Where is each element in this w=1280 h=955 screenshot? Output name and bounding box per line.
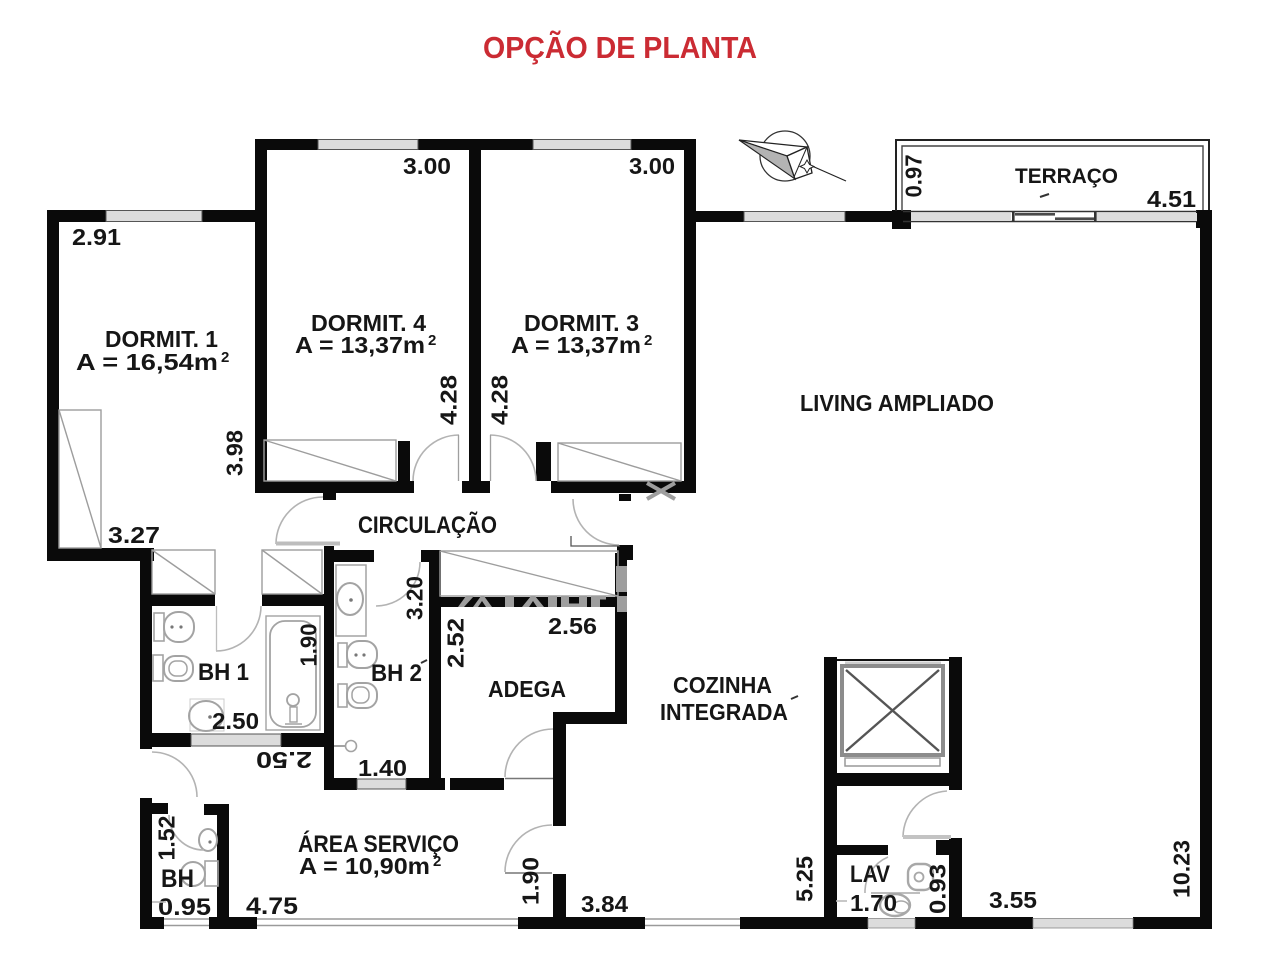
svg-text:BH 1: BH 1	[198, 659, 249, 686]
svg-text:0.97: 0.97	[901, 155, 927, 198]
svg-text:CIRCULAÇÃO: CIRCULAÇÃO	[358, 511, 497, 539]
svg-text:2.91: 2.91	[72, 224, 121, 250]
svg-text:0.93: 0.93	[925, 864, 951, 914]
svg-text:A = 13,37m: A = 13,37m	[295, 332, 425, 358]
svg-text:3.27: 3.27	[108, 522, 160, 548]
svg-text:A = 13,37m: A = 13,37m	[511, 332, 641, 358]
svg-text:5.25: 5.25	[792, 856, 818, 902]
svg-text:4.28: 4.28	[487, 375, 513, 425]
svg-text:2: 2	[221, 349, 229, 366]
svg-text:4.75: 4.75	[246, 893, 298, 920]
svg-text:3.84: 3.84	[581, 891, 628, 917]
svg-text:OPÇÃO DE PLANTA: OPÇÃO DE PLANTA	[483, 30, 757, 65]
svg-text:LIVING AMPLIADO: LIVING AMPLIADO	[800, 390, 994, 416]
svg-text:1.90: 1.90	[518, 857, 544, 905]
svg-text:1.90: 1.90	[296, 624, 322, 667]
svg-text:3.55: 3.55	[989, 887, 1037, 913]
svg-text:2.56: 2.56	[548, 613, 597, 639]
svg-text:BH 2: BH 2	[371, 660, 422, 687]
svg-text:BH: BH	[161, 865, 194, 893]
svg-text:2.52: 2.52	[443, 618, 469, 668]
svg-text:1.40: 1.40	[358, 755, 407, 781]
svg-text:LAV: LAV	[850, 861, 890, 888]
svg-text:INTEGRADA: INTEGRADA	[660, 699, 788, 725]
svg-text:0.95: 0.95	[158, 894, 211, 921]
svg-text:2.50: 2.50	[256, 747, 312, 773]
svg-text:3.00: 3.00	[629, 153, 675, 179]
svg-text:1.70: 1.70	[850, 890, 897, 916]
svg-text:2: 2	[644, 332, 652, 349]
svg-text:10.23: 10.23	[1169, 840, 1195, 898]
svg-text:4.28: 4.28	[436, 375, 462, 425]
svg-text:COZINHA: COZINHA	[673, 672, 772, 698]
svg-text:4.51: 4.51	[1147, 186, 1196, 212]
svg-text:TERRAÇO: TERRAÇO	[1015, 165, 1118, 188]
svg-text:1.52: 1.52	[154, 816, 180, 861]
svg-text:3.00: 3.00	[403, 153, 451, 179]
svg-text:A = 10,90m: A = 10,90m	[299, 853, 430, 879]
svg-text:3.20: 3.20	[402, 576, 428, 620]
svg-text:2: 2	[428, 332, 436, 349]
svg-text:3.98: 3.98	[222, 430, 248, 476]
svg-text:A = 16,54m: A = 16,54m	[76, 349, 218, 375]
svg-text:2: 2	[433, 853, 441, 870]
svg-text:ADEGA: ADEGA	[488, 676, 566, 702]
svg-text:2.50: 2.50	[212, 708, 259, 734]
